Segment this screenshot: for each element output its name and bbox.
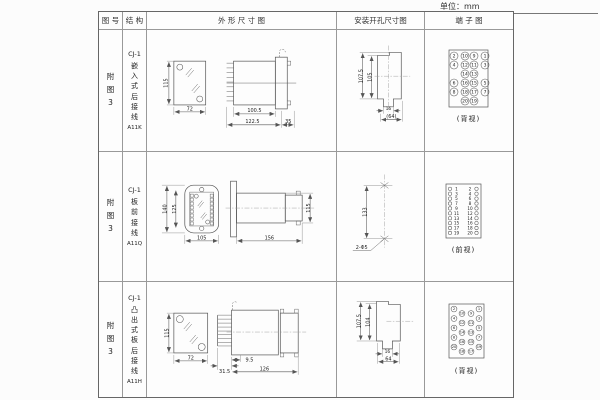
row1-figure-no: 附图3 <box>99 30 123 152</box>
view-label: (背视) <box>455 366 478 375</box>
row2-terminal-cell: 1 2 3 4 5 6 7 8 9 10 11 12 <box>425 152 513 282</box>
terminal-num: 4 <box>453 62 456 68</box>
terminal-num: 11 <box>469 321 474 325</box>
dim-h2: 125 <box>172 204 178 213</box>
dim-slot: 16 <box>385 348 391 354</box>
terminal-num: 1 <box>484 53 487 59</box>
terminal-num: 16 <box>460 340 465 344</box>
side-view: 100.5 122.5 35 <box>227 49 297 128</box>
row3-outline-cell: 115 72 31.5 <box>147 282 337 397</box>
dim-front-height: 115 <box>164 328 170 337</box>
terminal-num: 19 <box>454 230 460 235</box>
terminal-num: 19 <box>477 345 482 349</box>
terminal-num: 7 <box>478 335 480 339</box>
terminal-drawing-r1: 2 10 9 1 4 12 11 3 14 13 6 16 15 5 <box>425 30 513 152</box>
row2-structure: CJ-1 板前接线 A11Q <box>123 152 147 282</box>
header-outline: 外 形 尺 寸 图 <box>147 12 337 30</box>
header-terminal: 端 子 图 <box>425 12 513 30</box>
row1-structure: CJ-1 嵌入式后接线 A11K <box>123 30 147 152</box>
dim-h1: 140 <box>162 204 168 213</box>
row2-mounting-cell: 133 2-Φ5 <box>337 152 425 282</box>
dim-slot: 16 <box>386 105 392 111</box>
view-label: (前视) <box>452 245 475 254</box>
structure-code: A11K <box>127 125 141 131</box>
structure-code: A11Q <box>127 241 142 247</box>
terminal-num: 15 <box>471 80 477 86</box>
structure-type: 板前接线 <box>130 197 139 238</box>
structure-code: A11H <box>127 379 142 385</box>
side-view: 156 115 <box>226 181 315 244</box>
terminal-num: 9 <box>470 311 473 315</box>
dim-v1: 107.5 <box>359 69 365 83</box>
terminal-circles: 2 10 9 1 4 12 11 3 14 13 6 16 15 5 <box>450 52 489 105</box>
terminal-num: 17 <box>469 349 474 353</box>
dim-front-width: 72 <box>188 355 194 361</box>
terminal-num: 20 <box>462 98 468 104</box>
dim-v: 133 <box>363 207 369 216</box>
terminal-num: 10 <box>460 311 465 315</box>
figure-no-text: 附图3 <box>106 71 116 109</box>
terminal-num: 20 <box>452 345 457 349</box>
dim-front-width: 72 <box>187 106 193 112</box>
dim-v1: 107.5 <box>357 314 363 328</box>
terminal-circles: 2 4 6 8 20 10 12 14 16 18 9 11 13 15 17 … <box>451 306 482 354</box>
terminal-num: 13 <box>469 330 474 334</box>
terminal-num: 19 <box>471 98 477 104</box>
figure-no-text: 附图3 <box>106 197 116 235</box>
terminal-num: 8 <box>453 335 456 339</box>
structure-type: 凸出式板后接线 <box>130 305 139 376</box>
terminal-drawing-r2: 1 2 3 4 5 6 7 8 9 10 11 12 <box>425 152 513 282</box>
row3-terminal-cell: 2 4 6 8 20 10 12 14 16 18 9 11 13 15 17 … <box>425 282 513 397</box>
header-figure-no: 图 号 <box>99 12 123 30</box>
terminal-num: 2 <box>453 307 455 311</box>
side-view: 31.5 9.5 126 <box>211 301 306 374</box>
outline-drawing-r2: 140 125 105 156 <box>147 152 336 282</box>
structure-type: 嵌入式后接线 <box>130 61 139 122</box>
terminal-num: 11 <box>471 62 477 68</box>
dim-side-2: 122.5 <box>245 118 259 124</box>
dim-side-1: 31.5 <box>219 368 230 374</box>
terminal-num: 9 <box>473 53 476 59</box>
terminal-num: 1 <box>478 307 480 311</box>
terminal-num: 4 <box>453 316 456 320</box>
terminal-num: 12 <box>460 321 465 325</box>
row2-figure-no: 附图3 <box>99 152 123 282</box>
dimension-table: 图 号 结 构 外 形 尺 寸 图 安装开孔尺寸图 端 子 图 附图3 CJ-1… <box>98 11 514 398</box>
structure-model: CJ-1 <box>128 186 141 194</box>
dim-side-3: 35 <box>285 118 291 124</box>
header-mounting: 安装开孔尺寸图 <box>337 12 425 30</box>
dim-width: 64 <box>385 356 391 362</box>
row1-mounting-cell: 107.5 105 16 (64) <box>337 30 425 152</box>
terminal-num: 18 <box>462 89 468 95</box>
dim-w: 105 <box>197 235 206 241</box>
terminal-drawing-r3: 2 4 6 8 20 10 12 14 16 18 9 11 13 15 17 … <box>425 282 513 397</box>
terminal-num: 16 <box>462 80 468 86</box>
terminal-num: 6 <box>453 80 456 86</box>
terminal-num: 6 <box>453 326 456 330</box>
terminal-num: 13 <box>471 71 477 77</box>
structure-model: CJ-1 <box>128 294 141 302</box>
terminal-num: 10 <box>462 53 468 59</box>
manual-page: 单位：mm 图 号 结 构 外 形 尺 寸 图 安装开孔尺寸图 端 子 图 附图… <box>0 0 600 400</box>
row1-outline-cell: 115 72 100.5 <box>147 30 337 152</box>
header-structure: 结 构 <box>123 12 147 30</box>
terminal-num: 3 <box>484 62 487 68</box>
figure-no-text: 附图3 <box>106 320 116 358</box>
mounting-drawing-r1: 107.5 105 16 (64) <box>337 30 424 152</box>
terminal-num: 7 <box>484 89 487 95</box>
row3-figure-no: 附图3 <box>99 282 123 397</box>
row3-mounting-cell: 107.5 104 16 64 <box>337 282 425 397</box>
view-label: (背视) <box>457 114 480 123</box>
dim-front-height: 115 <box>163 78 169 87</box>
hole-callout: 2-Φ5 <box>356 245 368 251</box>
mounting-drawing-r3: 107.5 104 16 64 <box>337 282 424 397</box>
terminal-num: 14 <box>462 71 468 77</box>
terminal-num: 18 <box>460 349 465 353</box>
dim-v2: 104 <box>366 317 372 326</box>
row3-structure: CJ-1 凸出式板后接线 A11H <box>123 282 147 397</box>
terminal-num: 15 <box>469 340 474 344</box>
outline-drawing-r3: 115 72 31.5 <box>147 282 336 397</box>
terminal-num: 5 <box>478 326 480 330</box>
dim-side-1: 100.5 <box>247 107 261 113</box>
dim-sh: 115 <box>306 203 312 212</box>
structure-model: CJ-1 <box>128 50 141 58</box>
dim-l: 156 <box>265 235 274 241</box>
terminal-circles: 1 2 3 4 5 6 7 8 9 10 11 12 <box>448 186 478 235</box>
front-view: 140 125 105 <box>162 185 219 244</box>
terminal-num: 12 <box>462 62 468 68</box>
terminal-num: 3 <box>478 316 480 320</box>
front-view: 115 72 <box>164 313 207 364</box>
row1-terminal-cell: 2 10 9 1 4 12 11 3 14 13 6 16 15 5 <box>425 30 513 152</box>
row2-outline-cell: 140 125 105 156 <box>147 152 337 282</box>
terminal-num: 17 <box>471 89 477 95</box>
dim-side-3: 126 <box>260 366 269 372</box>
dim-side-2: 9.5 <box>246 357 254 363</box>
front-view: 115 72 <box>163 61 205 115</box>
terminal-num: 8 <box>453 89 456 95</box>
terminal-num: 20 <box>467 230 473 235</box>
terminal-num: 5 <box>484 80 487 86</box>
terminal-num: 14 <box>460 330 465 334</box>
outline-drawing-r1: 115 72 100.5 <box>147 30 336 152</box>
dim-width: (64) <box>386 114 396 120</box>
dim-v2: 105 <box>368 72 374 81</box>
mounting-drawing-r2: 133 2-Φ5 <box>337 152 424 282</box>
terminal-num: 2 <box>453 53 456 59</box>
